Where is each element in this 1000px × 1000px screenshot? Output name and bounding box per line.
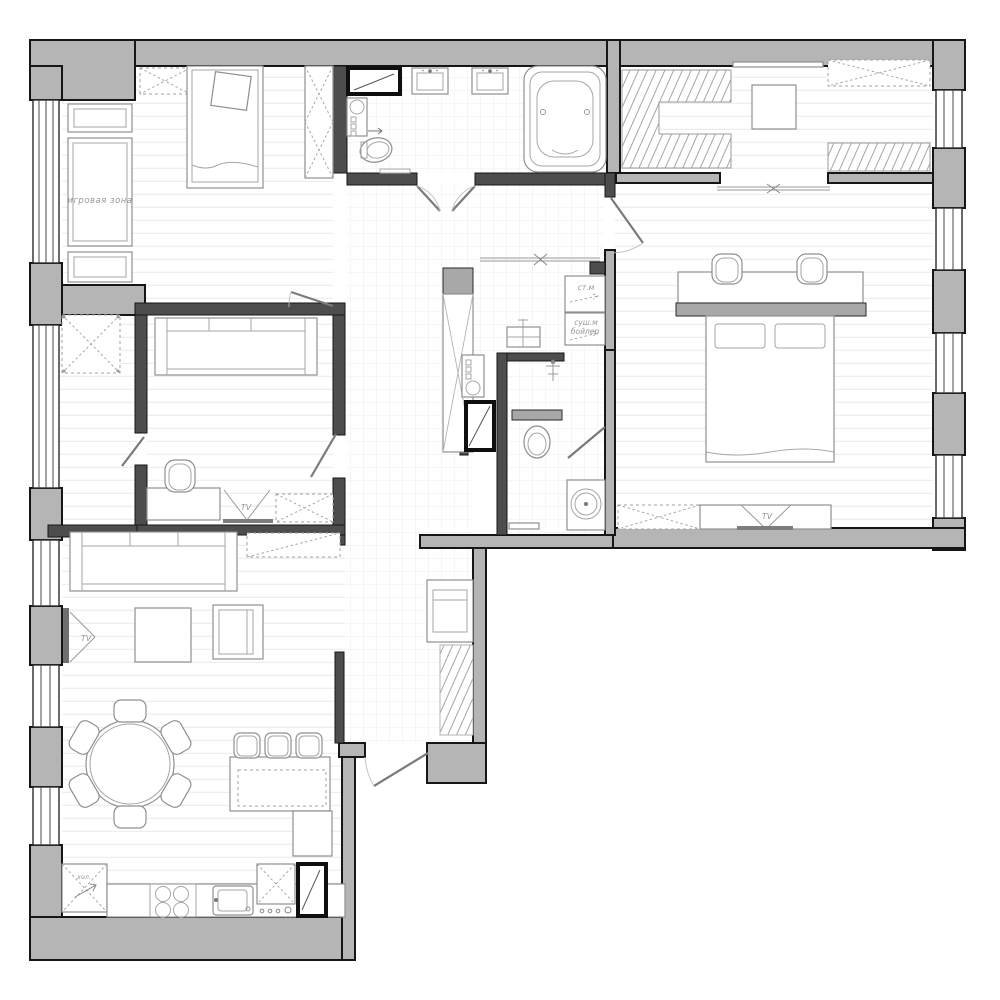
window-living-2 [33,665,59,727]
kitchen-window-panel [298,864,326,916]
dining-chair-icon [114,806,146,828]
wall-left-pier [30,263,62,325]
window-closet [936,90,962,148]
double-bed-icon [706,316,834,462]
armchair-icon [213,605,263,659]
window-bedroom-2 [936,333,962,393]
shelf-icon [68,104,132,132]
wall-bedroom-door-stub [605,173,615,197]
window-living-3 [33,787,59,845]
wall-block [62,285,145,315]
sliding-wardrobe-icon [247,533,340,557]
tv-label-office: TV [241,503,252,512]
dryer-label: суш.м [574,318,598,327]
window-bedroom-3 [936,455,962,518]
entry-door [374,753,428,786]
vanity-desk-icon [678,272,863,303]
tv-label-master: TV [762,512,773,521]
loggia-cabinet-icon [62,315,120,373]
washbasin-unit-icon [347,98,367,136]
closet-shelf [733,62,823,67]
fridge-label: хол. [76,873,91,881]
wall-laundry-stub [590,262,605,274]
desk-chair-icon [165,460,195,492]
wall-bedroom-west [605,250,615,353]
tall-cabinet-icon [257,864,295,904]
child-bed-icon [187,66,263,188]
mirror-panel [348,68,400,94]
desk-icon [147,488,220,520]
wall-guestbath-east [605,350,615,535]
wall-hallway-east [473,548,486,743]
window-living-1 [33,540,59,606]
wardrobe-icon [618,505,700,529]
floor-plan-drawing: игровая зона [0,0,1000,1000]
wardrobe-icon [276,494,333,522]
wall-left-pier [30,66,62,100]
vanity-basin-icon [567,480,605,530]
stool-icon [797,254,827,284]
wall-living-hall [335,652,344,743]
wall-right-pier [933,40,965,90]
tall-wardrobe-icon [305,66,333,178]
tv-label-living: TV [81,634,92,643]
wall-guestbath-west [497,353,507,535]
wall-bottom [30,917,355,960]
water-heater-unit [462,355,494,450]
wall-right-pier [933,393,965,455]
window-loggia [33,325,59,488]
wardrobe-icon [828,60,930,86]
wall-top [30,40,965,66]
bench-icon [68,252,132,282]
shower-bench-icon [512,410,562,420]
tv-icon [223,519,273,523]
play-mat-icon [68,138,132,246]
wall-kitchen-right [342,757,355,960]
wall-closet-south-w [616,173,720,183]
wardrobe-icon [140,68,190,94]
bar-stool-icon [296,733,322,758]
toilet-icon [524,426,550,458]
wall-right-pier [933,270,965,333]
tv-icon [737,526,793,530]
window-children [33,100,59,263]
window-bedroom-1 [936,208,962,270]
wall-guestbath-north [507,353,564,361]
boiler-label: бойлер [571,327,599,336]
fridge-icon [62,864,107,912]
wall-closet-south-e [828,173,933,183]
washing-machine-icon [565,276,605,312]
wall-bath-closet-divider [607,40,620,173]
wall-left-pier [30,606,62,665]
wall-corridor-south [420,535,613,548]
kitchen-sink-icon [213,886,253,915]
sink-icon [412,68,448,94]
floor-plan: игровая зона [0,0,1000,1000]
wall-right-pier [933,148,965,208]
coat-rack-icon [440,645,473,735]
wall-children-bath [333,66,347,173]
wall-office-east-n [333,315,345,435]
washer-label: ст.м [578,283,595,292]
bar-stool-icon [234,733,260,758]
headboard-icon [676,303,866,316]
sink-icon [472,68,508,94]
wall-bath-south-e [475,173,607,185]
entry-door-arc [365,757,374,786]
wall-children-south [135,303,345,315]
wall-office-west-n [135,315,147,433]
wall-bedroom-south [610,528,965,548]
bar-stool-icon [265,733,291,758]
bathtub-icon [524,66,606,172]
console-icon [427,580,473,642]
ottoman-icon [752,85,796,129]
shelf-icon [509,523,539,529]
sofa-icon [70,532,237,591]
wall-entry-block [427,743,486,783]
loggia [62,315,120,373]
wall-entry-stub [339,743,365,757]
play-zone-label: игровая зона [67,196,132,206]
wall-left-pier [30,727,62,787]
coffee-table-icon [135,608,191,662]
corridor-floor-2 [473,183,605,259]
dining-chair-icon [114,700,146,722]
clothes-rail-icon [828,143,930,171]
sofa-icon [155,318,317,375]
wall-bath-south-w [347,173,417,185]
tv-icon [63,608,69,663]
stool-icon [712,254,742,284]
